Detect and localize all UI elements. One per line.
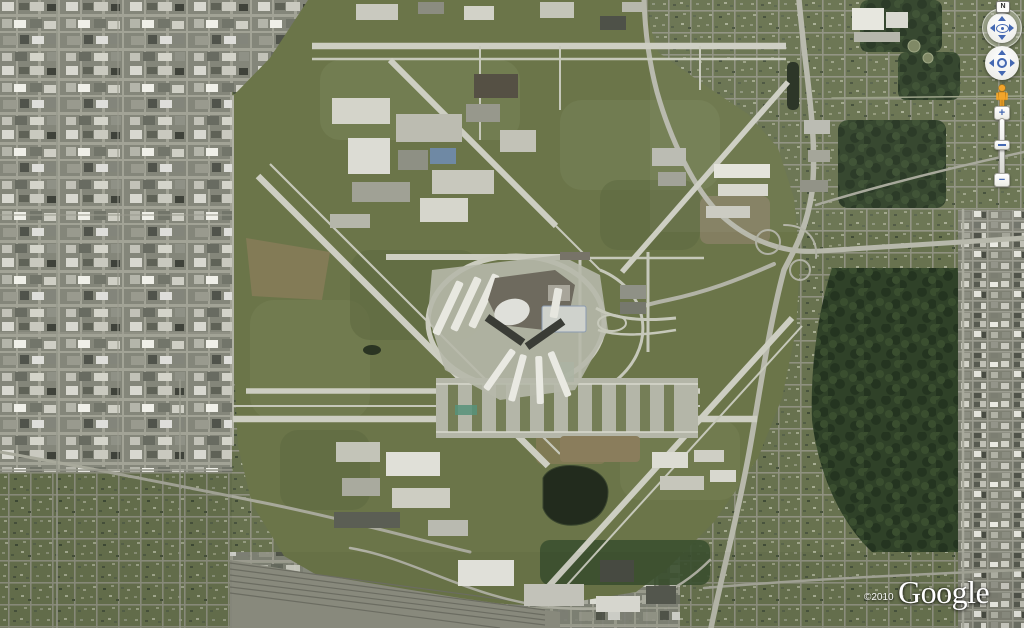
pan-joystick[interactable] [985,46,1019,80]
look-left-arrow[interactable] [990,24,995,32]
pan-right-arrow[interactable] [1010,59,1015,67]
look-joystick-face[interactable] [987,13,1017,43]
pan-down-arrow[interactable] [998,71,1006,76]
google-earth-viewport[interactable]: N + − ©2010 Google [0,0,1024,628]
pan-up-arrow[interactable] [998,50,1006,55]
zoom-out-button[interactable]: − [994,173,1010,187]
pan-left-arrow[interactable] [989,59,994,67]
look-up-arrow[interactable] [998,16,1006,21]
zoom-slider[interactable]: + − [994,106,1010,188]
copyright-text: ©2010 [864,592,894,603]
look-right-arrow[interactable] [1009,24,1014,32]
zoom-slider-handle[interactable] [994,140,1010,150]
eye-icon[interactable] [996,24,1009,33]
look-joystick[interactable] [982,8,1022,48]
google-logo: Google [898,574,989,611]
north-button[interactable]: N [996,1,1010,13]
look-down-arrow[interactable] [998,35,1006,40]
pan-center-knob[interactable] [997,58,1007,68]
satellite-map[interactable] [0,0,1024,628]
